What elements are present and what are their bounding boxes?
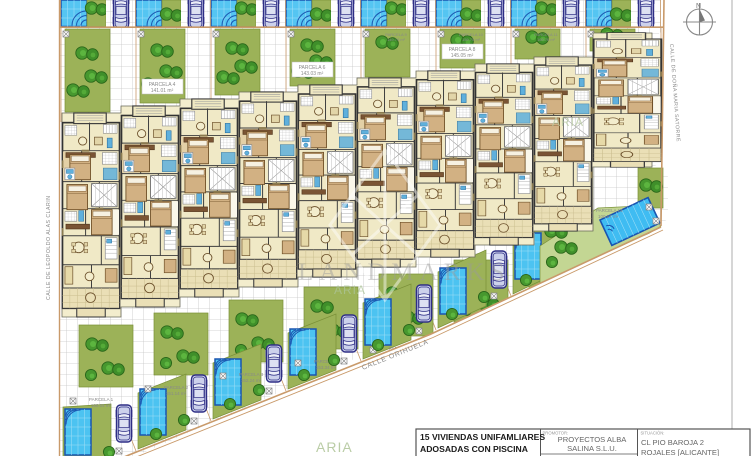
svg-text:ARIA: ARIA — [334, 283, 366, 297]
svg-text:149.74 m²: 149.74 m² — [387, 37, 406, 42]
svg-text:PROYECTOS ALBA: PROYECTOS ALBA — [558, 435, 628, 444]
svg-text:PARCELA 1: PARCELA 1 — [89, 397, 114, 402]
svg-text:SALINA S.L.U.: SALINA S.L.U. — [567, 444, 617, 453]
svg-text:ROJALES [ALICANTE]: ROJALES [ALICANTE] — [641, 448, 719, 456]
svg-text:15 VIVIENDAS UNIFAMLIARES: 15 VIVIENDAS UNIFAMLIARES — [420, 432, 545, 442]
svg-text:152.24 m²: 152.24 m² — [241, 378, 262, 383]
svg-text:LANDMARKS: LANDMARKS — [298, 259, 510, 286]
svg-text:143.03 m²: 143.03 m² — [301, 71, 324, 77]
svg-text:ARIA: ARIA — [316, 439, 353, 455]
svg-text:SITUACIÓN:: SITUACIÓN: — [641, 431, 665, 436]
svg-text:151.14 m²: 151.14 m² — [166, 391, 187, 396]
svg-text:PARCELA 14: PARCELA 14 — [596, 208, 623, 213]
svg-text:159.75 m²: 159.75 m² — [462, 37, 481, 42]
svg-text:N: N — [696, 3, 701, 10]
svg-text:141.01 m²: 141.01 m² — [151, 88, 174, 94]
svg-text:CALLE DE LEOPOLDO ALAS CLARIN: CALLE DE LEOPOLDO ALAS CLARIN — [46, 196, 52, 300]
svg-text:CL PIO BAROJA 2: CL PIO BAROJA 2 — [641, 438, 704, 447]
svg-text:PARCELA 3: PARCELA 3 — [239, 372, 264, 377]
svg-text:ARIA: ARIA — [552, 115, 584, 129]
svg-text:PARCELA 2: PARCELA 2 — [164, 385, 189, 390]
svg-text:ADOSADAS CON PISCINA: ADOSADAS CON PISCINA — [420, 444, 528, 454]
svg-text:145.05 m²: 145.05 m² — [451, 53, 474, 59]
svg-text:169.76 m²: 169.76 m² — [537, 37, 556, 42]
svg-text:150.04 m²: 150.04 m² — [91, 403, 112, 408]
svg-text:100.57 m²: 100.57 m² — [598, 214, 619, 219]
